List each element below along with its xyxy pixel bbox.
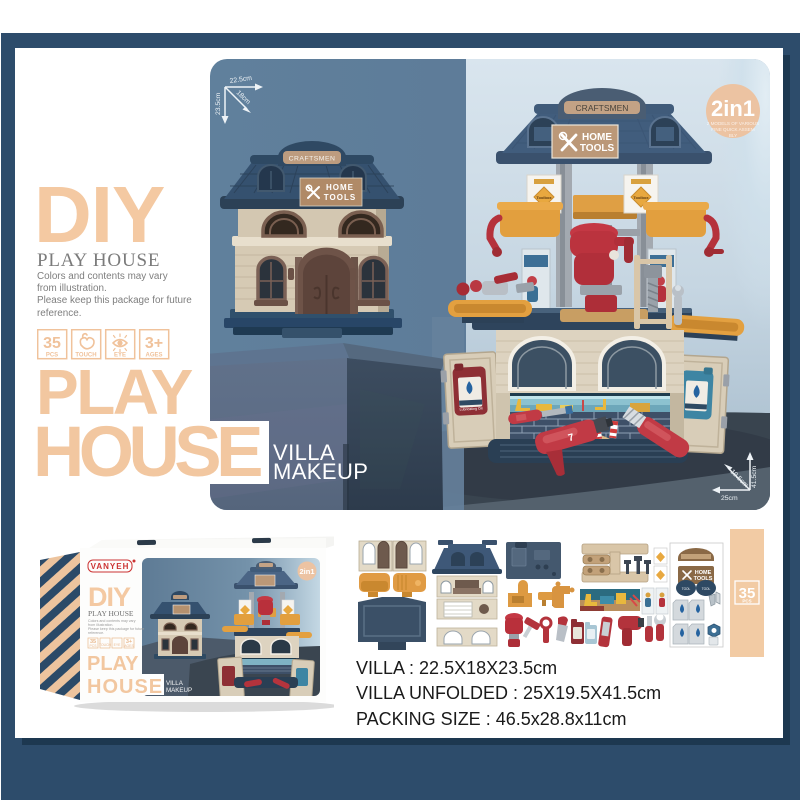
svg-text:35: 35	[43, 335, 61, 352]
svg-text:2in1: 2in1	[299, 567, 314, 576]
svg-text:HOME: HOME	[582, 132, 612, 143]
svg-text:41.5cm: 41.5cm	[751, 465, 758, 488]
svg-text:TOOL: TOOL	[702, 587, 711, 591]
svg-text:BLY: BLY	[729, 133, 737, 138]
svg-text:VANYEH: VANYEH	[91, 562, 130, 571]
svg-text:CRAFTSMEN: CRAFTSMEN	[289, 156, 336, 163]
svg-text:PLAY HOUSE: PLAY HOUSE	[88, 609, 134, 618]
svg-text:VILLA: VILLA	[166, 680, 184, 687]
svg-text:Toolbox: Toolbox	[536, 195, 552, 200]
svg-text:CRAFTSMEN: CRAFTSMEN	[576, 103, 629, 113]
svg-text:TOUCH: TOUCH	[99, 643, 112, 647]
svg-text:PLAY: PLAY	[87, 653, 139, 675]
svg-text:2in1: 2in1	[711, 96, 755, 121]
svg-text:HOUSE: HOUSE	[87, 676, 163, 698]
svg-text:HOME: HOME	[326, 183, 354, 192]
svg-text:25cm: 25cm	[721, 495, 738, 502]
svg-text:3+: 3+	[145, 335, 163, 352]
svg-text:PCS: PCS	[90, 644, 98, 648]
svg-text:TOOLS: TOOLS	[324, 193, 356, 202]
svg-text:MAKEUP: MAKEUP	[166, 687, 192, 694]
svg-text:TOOL: TOOL	[682, 587, 691, 591]
svg-text:TOOLS: TOOLS	[580, 143, 615, 154]
svg-text:AGES: AGES	[124, 644, 134, 648]
svg-text:Toolbox: Toolbox	[633, 195, 649, 200]
svg-text:PCS: PCS	[742, 599, 751, 604]
svg-text:reference.: reference.	[88, 631, 104, 635]
svg-text:EYE: EYE	[114, 643, 122, 647]
svg-text:23.5cm: 23.5cm	[215, 92, 222, 115]
svg-text:DIY: DIY	[88, 582, 131, 612]
svg-text:2 MODELS OF VARIOUS: 2 MODELS OF VARIOUS	[707, 121, 760, 126]
svg-text:FINE QUICK ASSEM: FINE QUICK ASSEM	[711, 127, 755, 132]
